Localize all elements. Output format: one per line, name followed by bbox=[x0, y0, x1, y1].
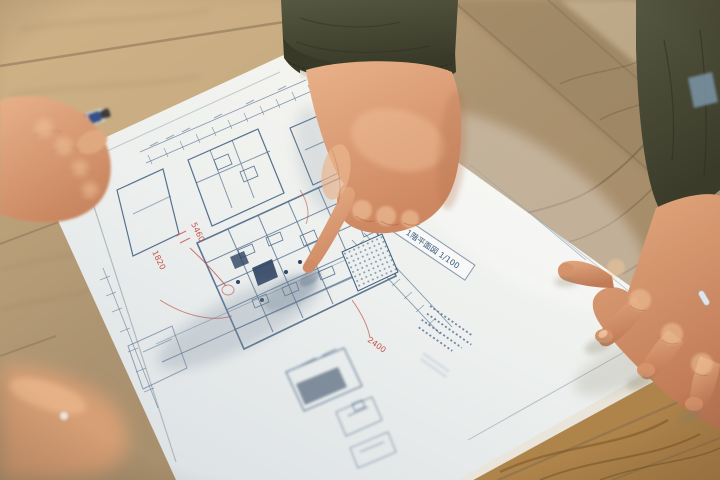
photo-canvas: 5460 1820 2400 1階平面図 1/100 bbox=[0, 0, 720, 480]
photo-floorplan-meeting: 5460 1820 2400 1階平面図 1/100 bbox=[0, 0, 720, 480]
vignette bbox=[0, 0, 720, 480]
